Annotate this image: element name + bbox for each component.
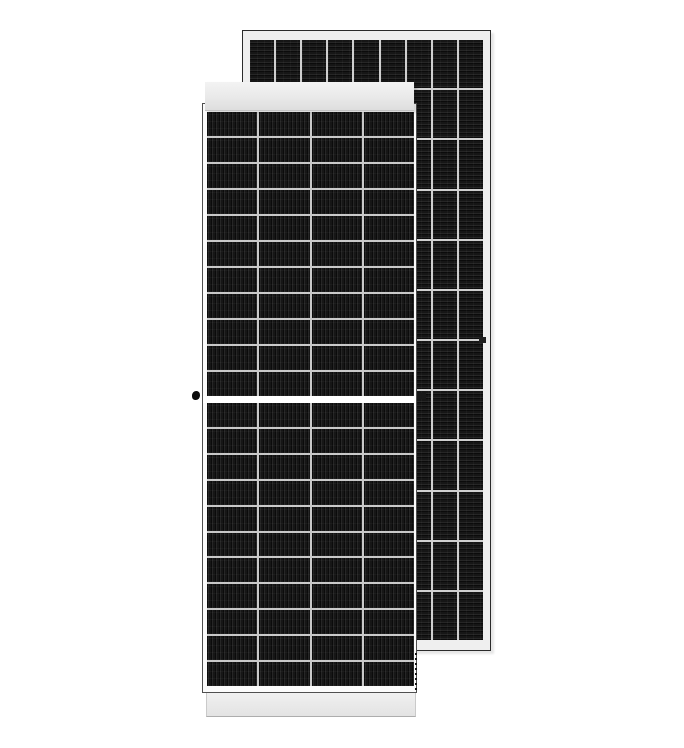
solar-cell	[259, 429, 309, 453]
solar-cell	[312, 429, 362, 453]
solar-cell	[459, 140, 483, 188]
solar-cell	[364, 403, 414, 427]
product-image	[0, 0, 684, 748]
solar-cell	[207, 533, 257, 557]
solar-cell	[259, 610, 309, 634]
solar-cell	[459, 291, 483, 339]
front-panel-cell-grid-top	[207, 112, 414, 396]
solar-cell	[312, 610, 362, 634]
solar-cell	[364, 138, 414, 162]
solar-cell	[207, 372, 257, 396]
solar-cell	[312, 216, 362, 240]
solar-cell	[364, 558, 414, 582]
solar-cell	[364, 533, 414, 557]
solar-cell	[433, 291, 457, 339]
solar-cell	[364, 662, 414, 686]
solar-cell	[302, 40, 326, 88]
solar-cell	[433, 391, 457, 439]
solar-cell	[312, 112, 362, 136]
solar-cell	[459, 492, 483, 540]
solar-cell	[364, 216, 414, 240]
solar-cell	[364, 584, 414, 608]
solar-cell	[312, 242, 362, 266]
solar-cell	[259, 636, 309, 660]
front-panel-cell-grid-bottom	[207, 403, 414, 686]
solar-cell	[250, 40, 274, 88]
solar-cell	[312, 662, 362, 686]
solar-cell	[364, 455, 414, 479]
solar-cell	[312, 533, 362, 557]
solar-cell	[312, 294, 362, 318]
solar-cell	[312, 403, 362, 427]
solar-cell	[312, 164, 362, 188]
front-panel-bottom-frame-band	[206, 693, 416, 717]
rear-frame-mark	[417, 393, 426, 399]
solar-cell	[207, 164, 257, 188]
frame-dashed-edge	[415, 653, 417, 692]
solar-cell	[207, 112, 257, 136]
solar-cell	[459, 441, 483, 489]
front-solar-panel	[202, 103, 417, 693]
solar-cell	[276, 40, 300, 88]
solar-cell	[312, 372, 362, 396]
solar-cell	[354, 40, 378, 88]
solar-cell	[328, 40, 352, 88]
solar-cell	[364, 481, 414, 505]
solar-cell	[312, 455, 362, 479]
solar-cell	[459, 90, 483, 138]
solar-cell	[459, 40, 483, 88]
solar-cell	[433, 40, 457, 88]
solar-cell	[207, 216, 257, 240]
solar-cell	[259, 294, 309, 318]
solar-cell	[364, 112, 414, 136]
solar-cell	[364, 294, 414, 318]
solar-cell	[312, 507, 362, 531]
solar-cell	[207, 320, 257, 344]
solar-cell	[259, 558, 309, 582]
solar-cell	[364, 610, 414, 634]
solar-cell	[207, 403, 257, 427]
solar-cell	[312, 558, 362, 582]
solar-cell	[259, 403, 309, 427]
solar-cell	[364, 190, 414, 214]
solar-cell	[207, 558, 257, 582]
solar-cell	[207, 636, 257, 660]
solar-cell	[312, 138, 362, 162]
solar-cell	[433, 492, 457, 540]
solar-cell	[364, 636, 414, 660]
solar-cell	[259, 455, 309, 479]
solar-cell	[433, 341, 457, 389]
solar-cell	[259, 507, 309, 531]
front-panel-center-divider	[203, 396, 416, 403]
solar-cell	[433, 191, 457, 239]
solar-cell	[433, 90, 457, 138]
solar-cell	[364, 164, 414, 188]
solar-cell	[312, 190, 362, 214]
solar-cell	[207, 242, 257, 266]
solar-cell	[207, 455, 257, 479]
solar-cell	[433, 140, 457, 188]
solar-cell	[259, 584, 309, 608]
solar-cell	[459, 241, 483, 289]
solar-cell	[364, 268, 414, 292]
solar-cell	[433, 592, 457, 640]
solar-cell	[312, 320, 362, 344]
solar-cell	[433, 542, 457, 590]
solar-cell	[259, 346, 309, 370]
solar-cell	[207, 138, 257, 162]
solar-cell	[364, 429, 414, 453]
solar-cell	[312, 584, 362, 608]
solar-cell	[407, 40, 431, 88]
solar-cell	[364, 320, 414, 344]
solar-cell	[312, 268, 362, 292]
solar-cell	[364, 507, 414, 531]
solar-cell	[459, 592, 483, 640]
solar-cell	[259, 481, 309, 505]
solar-cell	[259, 190, 309, 214]
solar-cell	[259, 533, 309, 557]
solar-cell	[259, 112, 309, 136]
solar-cell	[207, 190, 257, 214]
solar-cell	[433, 241, 457, 289]
solar-cell	[364, 242, 414, 266]
rear-frame-notch	[479, 337, 486, 343]
solar-cell	[207, 346, 257, 370]
solar-cell	[207, 481, 257, 505]
solar-cell	[207, 610, 257, 634]
solar-cell	[259, 662, 309, 686]
solar-cell	[259, 242, 309, 266]
grounding-hole	[192, 391, 200, 400]
solar-cell	[259, 216, 309, 240]
solar-cell	[207, 584, 257, 608]
solar-cell	[207, 662, 257, 686]
solar-cell	[312, 636, 362, 660]
solar-cell	[207, 507, 257, 531]
solar-cell	[381, 40, 405, 88]
solar-cell	[259, 138, 309, 162]
solar-cell	[259, 268, 309, 292]
solar-cell	[207, 268, 257, 292]
solar-cell	[259, 320, 309, 344]
solar-cell	[259, 164, 309, 188]
solar-cell	[459, 191, 483, 239]
solar-cell	[364, 372, 414, 396]
solar-cell	[207, 429, 257, 453]
solar-cell	[459, 341, 483, 389]
solar-cell	[312, 481, 362, 505]
solar-cell	[259, 372, 309, 396]
solar-cell	[364, 346, 414, 370]
solar-cell	[207, 294, 257, 318]
solar-cell	[459, 391, 483, 439]
front-panel-top-frame-band	[205, 82, 414, 111]
solar-cell	[459, 542, 483, 590]
solar-cell	[312, 346, 362, 370]
solar-cell	[433, 441, 457, 489]
